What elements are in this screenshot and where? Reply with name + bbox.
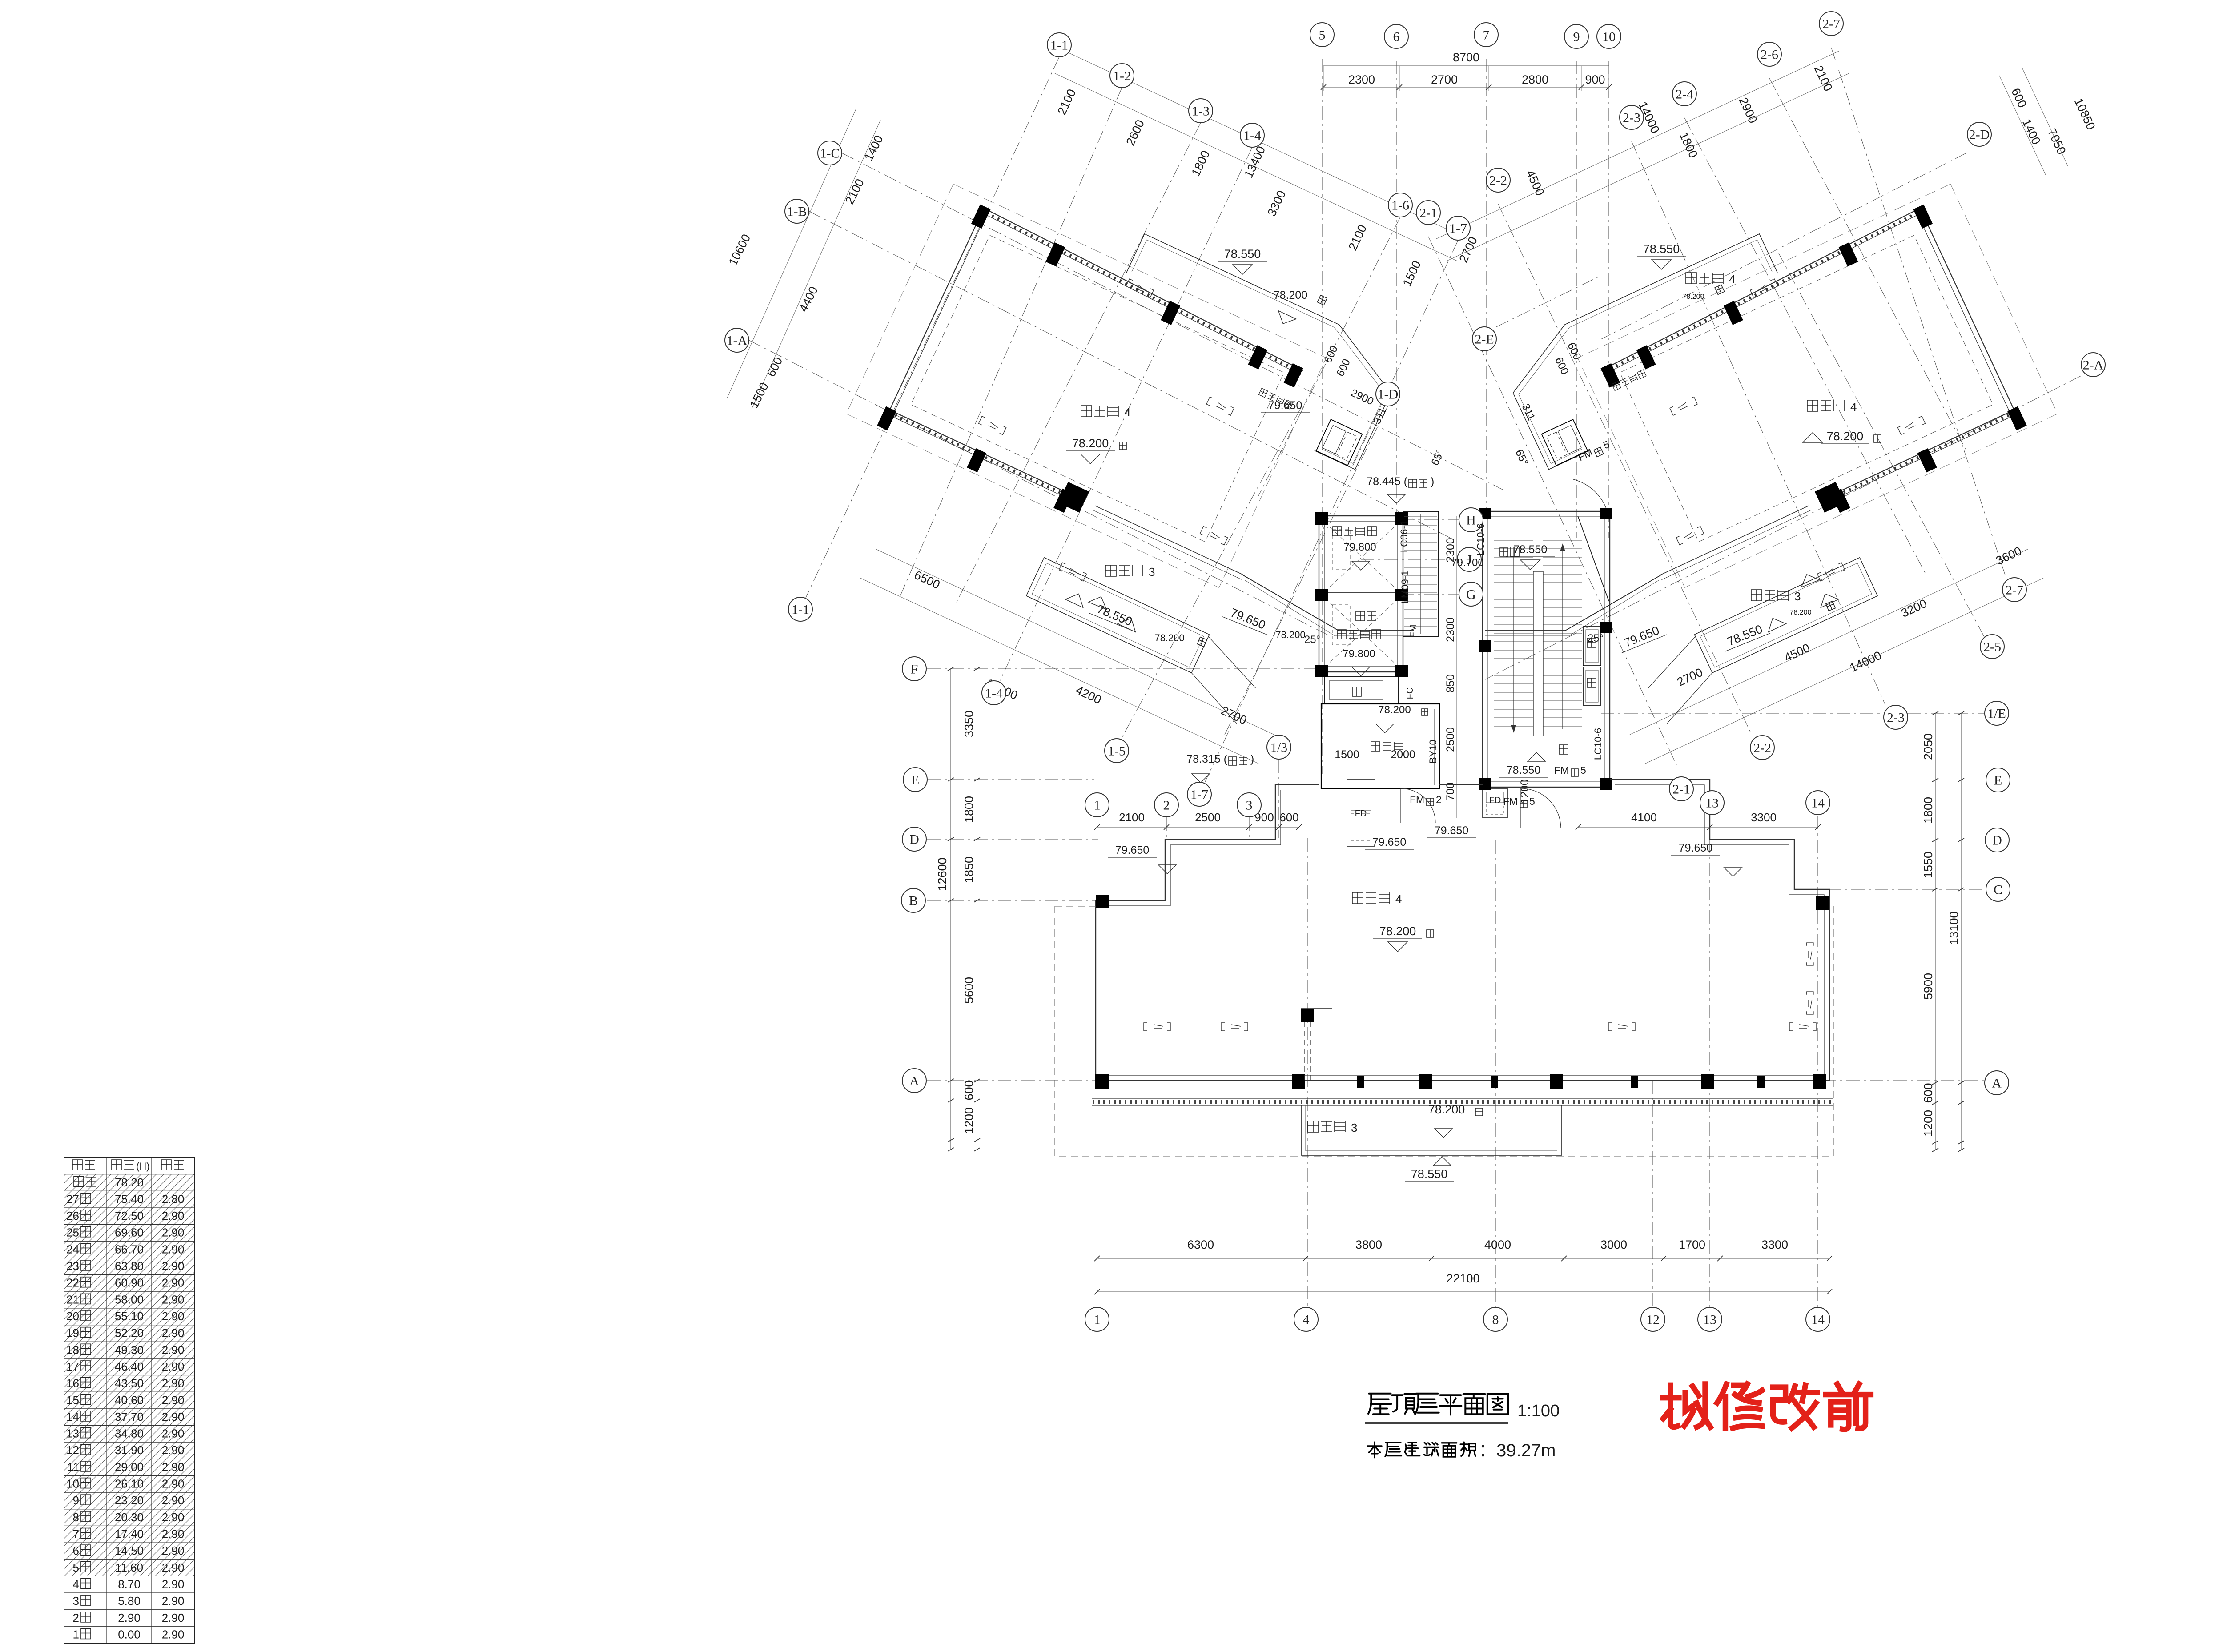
- svg-text:850: 850: [1444, 674, 1457, 693]
- svg-text:2-D: 2-D: [1969, 128, 1990, 142]
- svg-text:LC10-6: LC10-6: [1475, 523, 1486, 555]
- svg-text:2-3: 2-3: [1887, 711, 1905, 725]
- svg-text:3: 3: [1149, 565, 1155, 579]
- svg-text:6300: 6300: [1187, 1238, 1214, 1251]
- svg-text:2-6: 2-6: [1761, 48, 1778, 62]
- svg-text:4: 4: [1124, 406, 1130, 419]
- svg-text:G: G: [1466, 587, 1476, 602]
- svg-text:LC06-1: LC06-1: [1399, 520, 1410, 552]
- svg-text:12: 12: [1646, 1313, 1660, 1327]
- svg-text:2.90: 2.90: [162, 1393, 185, 1407]
- svg-text:7: 7: [1483, 28, 1490, 43]
- svg-text:2.90: 2.90: [162, 1226, 185, 1239]
- svg-text:78.550: 78.550: [1224, 247, 1261, 261]
- svg-text:2-7: 2-7: [2006, 583, 2023, 598]
- svg-text:D: D: [1992, 833, 2002, 848]
- svg-text:5: 5: [1580, 764, 1586, 776]
- svg-text:22: 22: [66, 1276, 79, 1290]
- svg-text:78.200: 78.200: [1683, 293, 1704, 301]
- svg-text:2.90: 2.90: [162, 1259, 185, 1273]
- svg-text:78.315 (: 78.315 (: [1186, 753, 1227, 765]
- svg-text:B: B: [909, 894, 918, 908]
- svg-text:2500: 2500: [1444, 727, 1457, 752]
- svg-text:2.90: 2.90: [162, 1326, 185, 1340]
- svg-text:600: 600: [1922, 1083, 1935, 1103]
- svg-text:78.200: 78.200: [1379, 924, 1416, 938]
- svg-text:2.90: 2.90: [162, 1293, 185, 1306]
- svg-text:2-2: 2-2: [1753, 741, 1771, 756]
- svg-text:1800: 1800: [962, 796, 976, 823]
- svg-text:78.445 (: 78.445 (: [1367, 475, 1407, 488]
- svg-text:78.550: 78.550: [1643, 242, 1680, 256]
- svg-text:16: 16: [66, 1377, 79, 1390]
- svg-text:1-4: 1-4: [985, 686, 1003, 701]
- svg-text:23.20: 23.20: [115, 1494, 144, 1507]
- svg-text:FM: FM: [1554, 764, 1569, 776]
- svg-text:2.90: 2.90: [162, 1561, 185, 1574]
- svg-text:4: 4: [1395, 892, 1402, 906]
- svg-text:5600: 5600: [962, 977, 976, 1004]
- svg-text:FM: FM: [1503, 796, 1518, 807]
- svg-text:19: 19: [66, 1326, 79, 1340]
- svg-text:2.90: 2.90: [162, 1242, 185, 1256]
- svg-text:10: 10: [66, 1477, 79, 1491]
- svg-text:8.70: 8.70: [118, 1578, 141, 1591]
- svg-text:13: 13: [1703, 1313, 1716, 1327]
- svg-text:5: 5: [73, 1561, 79, 1574]
- svg-text:：39.27m: ：39.27m: [1479, 1441, 1556, 1460]
- svg-text:66.70: 66.70: [115, 1242, 144, 1256]
- svg-text:1-7: 1-7: [1449, 221, 1467, 236]
- svg-text:17.40: 17.40: [115, 1527, 144, 1541]
- svg-text:1-2: 1-2: [1113, 69, 1131, 84]
- svg-text:78.200: 78.200: [1790, 609, 1812, 616]
- svg-text:79.650: 79.650: [1372, 836, 1406, 848]
- svg-text:79.650: 79.650: [1679, 842, 1712, 854]
- svg-text:24: 24: [66, 1242, 79, 1256]
- svg-text:1: 1: [73, 1628, 79, 1641]
- svg-text:6: 6: [1393, 30, 1400, 44]
- svg-text:20: 20: [66, 1310, 79, 1323]
- svg-text:2.90: 2.90: [162, 1343, 185, 1356]
- svg-text:8700: 8700: [1453, 51, 1479, 64]
- svg-text:2: 2: [1436, 794, 1442, 805]
- svg-text:2.90: 2.90: [162, 1310, 185, 1323]
- svg-text:12600: 12600: [936, 857, 949, 891]
- svg-text:4000: 4000: [1484, 1238, 1511, 1251]
- svg-text:78.550: 78.550: [1513, 543, 1547, 556]
- svg-text:2500: 2500: [1195, 811, 1221, 824]
- svg-text:49.30: 49.30: [115, 1343, 144, 1356]
- svg-text:14.50: 14.50: [115, 1544, 144, 1557]
- svg-text:27: 27: [66, 1192, 79, 1206]
- svg-text:): ): [1250, 753, 1254, 765]
- svg-text:63.80: 63.80: [115, 1259, 144, 1273]
- svg-text:2.90: 2.90: [162, 1427, 185, 1440]
- svg-text:69.60: 69.60: [115, 1226, 144, 1239]
- svg-text:1700: 1700: [1679, 1238, 1705, 1251]
- svg-text:600: 600: [1279, 811, 1298, 824]
- svg-text:79.650: 79.650: [1115, 844, 1149, 856]
- svg-text:58.00: 58.00: [115, 1293, 144, 1306]
- svg-text:46.40: 46.40: [115, 1360, 144, 1373]
- svg-text:79.700: 79.700: [1451, 557, 1483, 569]
- svg-text:79.650: 79.650: [1268, 399, 1302, 412]
- svg-text:14: 14: [1811, 796, 1825, 811]
- svg-text:26: 26: [66, 1209, 79, 1222]
- svg-text:2-2: 2-2: [1489, 173, 1507, 188]
- svg-text:2300: 2300: [1348, 73, 1375, 86]
- svg-text:9: 9: [1573, 30, 1580, 44]
- svg-text:20.30: 20.30: [115, 1511, 144, 1524]
- svg-text:2.90: 2.90: [162, 1494, 185, 1507]
- svg-text:3800: 3800: [1355, 1238, 1382, 1251]
- svg-text:1-B: 1-B: [787, 205, 807, 219]
- svg-text:1200: 1200: [1922, 1110, 1935, 1137]
- svg-text:11.60: 11.60: [115, 1561, 143, 1574]
- svg-text:2100: 2100: [1119, 811, 1145, 824]
- svg-text:2.90: 2.90: [162, 1527, 185, 1541]
- svg-text:FD: FD: [1355, 809, 1367, 819]
- svg-text:1-4: 1-4: [1243, 129, 1261, 143]
- svg-text:FD: FD: [1489, 796, 1501, 805]
- svg-text:60.90: 60.90: [115, 1276, 144, 1290]
- svg-text:8: 8: [1492, 1313, 1499, 1327]
- svg-text:2.90: 2.90: [162, 1594, 185, 1608]
- svg-text:1850: 1850: [962, 856, 976, 883]
- svg-text:25: 25: [66, 1226, 79, 1239]
- svg-text:): ): [1431, 475, 1434, 488]
- svg-text:4: 4: [73, 1578, 79, 1591]
- svg-text:7: 7: [73, 1527, 79, 1541]
- svg-text:8: 8: [73, 1511, 79, 1524]
- svg-text:21: 21: [66, 1293, 79, 1306]
- svg-text:2.90: 2.90: [162, 1628, 185, 1641]
- svg-text:2-5: 2-5: [1983, 640, 2001, 655]
- svg-text:13100: 13100: [1947, 911, 1961, 945]
- svg-text:1-3: 1-3: [1192, 104, 1210, 119]
- svg-text:0.00: 0.00: [118, 1628, 141, 1641]
- svg-text:BY10: BY10: [1427, 740, 1439, 764]
- svg-text:2.80: 2.80: [162, 1192, 185, 1206]
- svg-text:78.200: 78.200: [1378, 704, 1411, 716]
- svg-text:LC10-6: LC10-6: [1592, 728, 1604, 760]
- svg-text:FC: FC: [1405, 687, 1415, 699]
- svg-text:3350: 3350: [962, 711, 976, 737]
- svg-text:1-6: 1-6: [1391, 198, 1409, 213]
- svg-text:78.200: 78.200: [1428, 1103, 1465, 1116]
- svg-text:900: 900: [1585, 73, 1605, 86]
- svg-text:1800: 1800: [1922, 797, 1935, 824]
- svg-text:4: 4: [1303, 1313, 1310, 1327]
- svg-text:2-E: 2-E: [1475, 332, 1494, 347]
- svg-text:55.10: 55.10: [115, 1310, 144, 1323]
- svg-text:11: 11: [67, 1460, 79, 1474]
- svg-text:78.200: 78.200: [1154, 632, 1184, 643]
- svg-text:2.90: 2.90: [118, 1611, 141, 1624]
- svg-text:22100: 22100: [1446, 1272, 1479, 1285]
- svg-text:9: 9: [73, 1494, 79, 1507]
- svg-text:2-1: 2-1: [1419, 206, 1437, 221]
- svg-text:1: 1: [1094, 798, 1101, 813]
- svg-text:10: 10: [1602, 30, 1616, 44]
- svg-text:2.90: 2.90: [162, 1477, 185, 1491]
- svg-text:15: 15: [66, 1393, 79, 1407]
- svg-text:2.90: 2.90: [162, 1611, 185, 1624]
- svg-text:2: 2: [73, 1611, 79, 1624]
- svg-text:A: A: [1992, 1076, 2002, 1091]
- svg-text:2.90: 2.90: [162, 1544, 185, 1557]
- svg-text:2.90: 2.90: [162, 1460, 185, 1474]
- svg-text:4100: 4100: [1631, 811, 1657, 824]
- svg-text:29.00: 29.00: [115, 1460, 144, 1474]
- svg-text:13: 13: [66, 1427, 79, 1440]
- svg-text:37.70: 37.70: [115, 1410, 144, 1423]
- svg-text:14: 14: [1811, 1313, 1825, 1327]
- svg-text:1: 1: [1094, 1313, 1101, 1327]
- svg-text:3300: 3300: [1751, 811, 1777, 824]
- svg-text:2-7: 2-7: [1822, 17, 1840, 32]
- svg-text:5900: 5900: [1922, 973, 1935, 1000]
- svg-text:79.800: 79.800: [1343, 648, 1375, 660]
- svg-text:2.90: 2.90: [162, 1443, 185, 1457]
- svg-text:FM: FM: [1410, 794, 1424, 805]
- svg-text:31.90: 31.90: [115, 1443, 144, 1457]
- svg-text:(H): (H): [136, 1161, 150, 1172]
- svg-text:H: H: [1466, 513, 1476, 528]
- svg-text:2-A: 2-A: [2083, 358, 2104, 373]
- svg-text:17: 17: [66, 1360, 79, 1373]
- svg-text:52.20: 52.20: [115, 1326, 144, 1340]
- svg-text:79.800: 79.800: [1343, 541, 1376, 553]
- svg-text:1-1: 1-1: [1050, 38, 1068, 53]
- svg-text:1200: 1200: [962, 1107, 976, 1134]
- svg-text:79.650: 79.650: [1435, 824, 1468, 837]
- svg-text:5: 5: [1529, 796, 1535, 807]
- svg-text:5.80: 5.80: [118, 1594, 141, 1608]
- svg-text:78.200: 78.200: [1072, 437, 1109, 450]
- svg-text:23: 23: [66, 1259, 79, 1273]
- svg-text:12: 12: [66, 1443, 79, 1457]
- svg-text:78.200: 78.200: [1275, 629, 1305, 640]
- svg-text:3: 3: [1351, 1121, 1357, 1134]
- svg-text:78.550: 78.550: [1507, 764, 1540, 776]
- svg-text:34.80: 34.80: [115, 1427, 144, 1440]
- svg-text:2-4: 2-4: [1676, 87, 1693, 102]
- svg-text:6: 6: [73, 1544, 79, 1557]
- svg-text:600: 600: [962, 1080, 976, 1100]
- svg-text:3: 3: [73, 1594, 79, 1608]
- svg-text:3: 3: [1246, 798, 1253, 813]
- svg-text:1/E: 1/E: [1987, 707, 2006, 721]
- svg-text:2.90: 2.90: [162, 1377, 185, 1390]
- svg-text:43.50: 43.50: [115, 1377, 144, 1390]
- svg-text:78.200: 78.200: [1827, 430, 1864, 443]
- svg-text:2050: 2050: [1922, 733, 1935, 760]
- svg-text:40.60: 40.60: [115, 1393, 144, 1407]
- svg-text:1-C: 1-C: [820, 146, 840, 161]
- svg-text:1500: 1500: [1335, 748, 1359, 761]
- svg-text:1-7: 1-7: [1190, 788, 1208, 802]
- svg-text:78.20: 78.20: [115, 1176, 144, 1189]
- svg-text:1-5: 1-5: [1108, 744, 1126, 759]
- svg-text:2800: 2800: [1522, 73, 1548, 86]
- svg-text:72.50: 72.50: [115, 1209, 144, 1222]
- svg-text:E: E: [911, 773, 919, 788]
- svg-text:2700: 2700: [1431, 73, 1458, 86]
- svg-text:1-1: 1-1: [792, 603, 809, 617]
- svg-text:5: 5: [1319, 28, 1326, 43]
- svg-text:3: 3: [1794, 590, 1801, 603]
- svg-text:2.90: 2.90: [162, 1209, 185, 1222]
- svg-text:3000: 3000: [1600, 1238, 1627, 1251]
- svg-text:2.90: 2.90: [162, 1360, 185, 1373]
- svg-text:2: 2: [1163, 798, 1170, 813]
- svg-text:2300: 2300: [1444, 617, 1457, 642]
- svg-text:78.550: 78.550: [1411, 1167, 1448, 1181]
- svg-text:1:100: 1:100: [1517, 1402, 1560, 1420]
- svg-text:A: A: [909, 1074, 919, 1089]
- svg-text:13: 13: [1705, 796, 1719, 811]
- svg-text:14: 14: [66, 1410, 79, 1423]
- svg-text:F: F: [911, 662, 918, 677]
- svg-text:2-1: 2-1: [1672, 782, 1690, 797]
- svg-text:1550: 1550: [1922, 852, 1935, 878]
- svg-text:4: 4: [1729, 273, 1735, 286]
- svg-text:2.90: 2.90: [162, 1578, 185, 1591]
- svg-text:2.90: 2.90: [162, 1410, 185, 1423]
- svg-text:18: 18: [66, 1343, 79, 1356]
- svg-text:C: C: [1994, 883, 2002, 897]
- svg-text:2-3: 2-3: [1623, 111, 1640, 125]
- svg-text:26.10: 26.10: [115, 1477, 144, 1491]
- svg-text:1-A: 1-A: [727, 334, 748, 348]
- svg-text:3300: 3300: [1761, 1238, 1788, 1251]
- svg-text:78.200: 78.200: [1274, 289, 1307, 301]
- svg-text:25°: 25°: [1304, 634, 1320, 646]
- svg-text:4: 4: [1850, 400, 1857, 414]
- svg-text:75.40: 75.40: [115, 1192, 144, 1206]
- svg-text:700: 700: [1444, 782, 1457, 801]
- svg-text:1-D: 1-D: [1378, 387, 1399, 402]
- svg-text:2.90: 2.90: [162, 1276, 185, 1290]
- svg-text:LM09-1: LM09-1: [1399, 571, 1411, 604]
- svg-text:FM: FM: [1408, 625, 1418, 638]
- svg-text:2.90: 2.90: [162, 1511, 185, 1524]
- svg-text:E: E: [1994, 773, 2002, 788]
- svg-text:D: D: [909, 832, 919, 847]
- svg-text:1/3: 1/3: [1270, 740, 1287, 755]
